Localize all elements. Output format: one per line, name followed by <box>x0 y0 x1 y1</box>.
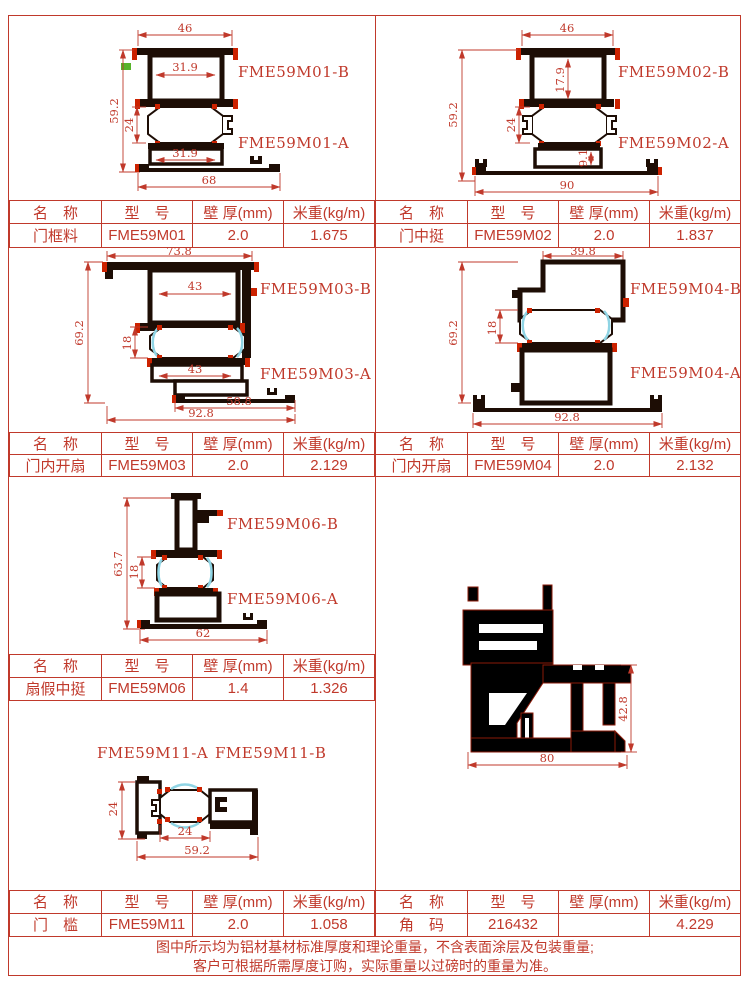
dimension-label: 69.2 <box>446 320 460 346</box>
cell-weight: 1.675 <box>283 224 374 247</box>
dimension-label: 62 <box>196 626 211 640</box>
col-header-model: 型 号 <box>101 433 192 455</box>
col-header-name: 名 称 <box>10 655 101 678</box>
col-header-thickness: 壁 厚(mm) <box>558 201 649 224</box>
cell-name: 门 槛 <box>10 914 101 937</box>
col-header-thickness: 壁 厚(mm) <box>192 433 283 455</box>
dimension-label: 18 <box>485 321 499 336</box>
green-swatch <box>121 63 131 70</box>
dimension-label: 58.8 <box>226 394 252 408</box>
profile-drawing-fme59m02: 46 17.9 24 59.2 9.1 90 FME59M02-B FME59M… <box>375 15 741 200</box>
spec-table-corner-cleat: 名 称 型 号 壁 厚(mm) 米重(kg/m) 角 码 216432 4.22… <box>375 890 741 937</box>
profile-label: FME59M06-A <box>227 590 338 608</box>
col-header-name: 名 称 <box>10 201 101 224</box>
cell-weight: 4.229 <box>649 914 740 937</box>
profile-drawing-fme59m11: FME59M11-A FME59M11-B 24 24 59.2 <box>9 701 375 890</box>
cell-thickness: 2.0 <box>192 455 283 477</box>
spec-table-fme59m06: 名 称 型 号 壁 厚(mm) 米重(kg/m) 扇假中挺 FME59M06 1… <box>9 654 375 701</box>
dimension-label: 63.7 <box>111 551 125 577</box>
col-header-thickness: 壁 厚(mm) <box>558 433 649 455</box>
col-header-thickness: 壁 厚(mm) <box>192 891 283 914</box>
dimension-label: 24 <box>504 118 518 133</box>
col-header-weight: 米重(kg/m) <box>283 433 374 455</box>
note-line-2: 客户可根据所需厚度订购，实际重量以过磅时的重量为准。 <box>193 957 557 976</box>
cell-model: FME59M01 <box>101 224 192 247</box>
dimension-label: 73.8 <box>166 248 192 258</box>
profile-drawing-fme59m01: 46 31.9 24 59.2 31.9 68 FME59M01-B FME59… <box>9 15 375 200</box>
footer-notes: 图中所示均为铝材基材标准厚度和理论重量，不含表面涂层及包装重量; 客户可根据所需… <box>9 937 741 976</box>
col-header-model: 型 号 <box>467 891 558 914</box>
cell-thickness <box>558 914 649 937</box>
col-header-thickness: 壁 厚(mm) <box>558 891 649 914</box>
cell-model: FME59M02 <box>467 224 558 247</box>
col-header-name: 名 称 <box>376 433 467 455</box>
col-header-weight: 米重(kg/m) <box>649 891 740 914</box>
spec-table-fme59m03: 名 称 型 号 壁 厚(mm) 米重(kg/m) 门内开扇 FME59M03 2… <box>9 432 375 477</box>
col-header-model: 型 号 <box>467 433 558 455</box>
profile-label: FME59M11-A <box>97 744 208 762</box>
dimension-label: 69.2 <box>72 320 86 346</box>
spec-sheet-page: 46 31.9 24 59.2 31.9 68 FME59M01-B FME59… <box>0 0 750 995</box>
profile-label: FME59M03-A <box>260 365 371 383</box>
cell-name: 门中挺 <box>376 224 467 247</box>
dimension-label: 31.9 <box>172 146 198 160</box>
dimension-label: 43 <box>188 279 203 293</box>
profile-label: FME59M02-B <box>618 63 729 81</box>
profile-label: FME59M04-A <box>630 364 741 382</box>
cell-thickness: 2.0 <box>192 224 283 247</box>
cell-weight: 1.058 <box>283 914 374 937</box>
profile-label: FME59M02-A <box>618 134 729 152</box>
profile-label: FME59M01-A <box>238 134 349 152</box>
cell-model: FME59M03 <box>101 455 192 477</box>
profile-label: FME59M01-B <box>238 63 349 81</box>
dimension-label: 42.8 <box>616 696 630 722</box>
dimension-label: 9.1 <box>576 149 590 167</box>
profile-drawing-fme59m06: 63.7 18 62 FME59M06-B FME59M06-A <box>9 477 375 654</box>
profile-label: FME59M04-B <box>630 280 741 298</box>
col-header-thickness: 壁 厚(mm) <box>192 655 283 678</box>
dimension-label: 92.8 <box>188 406 214 420</box>
dimension-label: 68 <box>202 173 217 187</box>
spec-table-fme59m02: 名 称 型 号 壁 厚(mm) 米重(kg/m) 门中挺 FME59M02 2.… <box>375 200 741 248</box>
dimension-label: 31.9 <box>172 60 198 74</box>
cell-model: FME59M11 <box>101 914 192 937</box>
spec-table-fme59m04: 名 称 型 号 壁 厚(mm) 米重(kg/m) 门内开扇 FME59M04 2… <box>375 432 741 477</box>
dimension-label: 46 <box>178 21 193 35</box>
cell-name: 门框料 <box>10 224 101 247</box>
dimension-label: 59.2 <box>184 843 210 857</box>
dimension-label: 43 <box>188 362 203 376</box>
dimension-label: 92.8 <box>554 410 580 424</box>
dimension-label: 17.9 <box>553 67 567 93</box>
dimension-label: 46 <box>560 21 575 35</box>
cell-name: 门内开扇 <box>376 455 467 477</box>
profile-label: FME59M06-B <box>227 515 338 533</box>
profile-label: FME59M11-B <box>215 744 326 762</box>
dimension-label: 24 <box>106 802 120 817</box>
col-header-name: 名 称 <box>376 201 467 224</box>
cell-thickness: 2.0 <box>192 914 283 937</box>
cell-weight: 1.326 <box>283 678 374 701</box>
dimension-label: 80 <box>540 751 555 765</box>
cell-model: FME59M04 <box>467 455 558 477</box>
cell-thickness: 2.0 <box>558 224 649 247</box>
dimension-label: 24 <box>122 118 136 133</box>
cell-weight: 2.129 <box>283 455 374 477</box>
col-header-name: 名 称 <box>10 891 101 914</box>
dimension-label: 59.2 <box>446 102 460 128</box>
dimension-label: 24 <box>178 824 193 838</box>
col-header-name: 名 称 <box>376 891 467 914</box>
cell-name: 门内开扇 <box>10 455 101 477</box>
dimension-label: 90 <box>560 178 575 192</box>
dimension-label: 59.2 <box>107 98 121 124</box>
dimension-label: 39.8 <box>570 248 596 258</box>
profile-drawing-fme59m03: 73.8 43 69.2 18 43 58.8 92.8 <box>9 248 375 432</box>
col-header-weight: 米重(kg/m) <box>283 891 374 914</box>
spec-table-fme59m01: 名 称 型 号 壁 厚(mm) 米重(kg/m) 门框料 FME59M01 2.… <box>9 200 375 248</box>
profile-drawing-fme59m04: 39.8 69.2 18 92.8 FME59M04-B FME59M04-A <box>375 248 741 432</box>
dimension-label: 18 <box>120 336 134 351</box>
cell-thickness: 1.4 <box>192 678 283 701</box>
cell-weight: 1.837 <box>649 224 740 247</box>
cell-name: 扇假中挺 <box>10 678 101 701</box>
note-line-1: 图中所示均为铝材基材标准厚度和理论重量，不含表面涂层及包装重量; <box>156 938 594 957</box>
col-header-name: 名 称 <box>10 433 101 455</box>
profile-label: FME59M03-B <box>260 280 371 298</box>
spec-table-fme59m11: 名 称 型 号 壁 厚(mm) 米重(kg/m) 门 槛 FME59M11 2.… <box>9 890 375 937</box>
cell-name: 角 码 <box>376 914 467 937</box>
col-header-model: 型 号 <box>101 891 192 914</box>
cell-thickness: 2.0 <box>558 455 649 477</box>
cell-weight: 2.132 <box>649 455 740 477</box>
col-header-weight: 米重(kg/m) <box>649 433 740 455</box>
profile-drawing-corner-cleat: 42.8 80 <box>375 477 741 890</box>
col-header-weight: 米重(kg/m) <box>649 201 740 224</box>
col-header-model: 型 号 <box>101 655 192 678</box>
col-header-weight: 米重(kg/m) <box>283 201 374 224</box>
dimension-label: 18 <box>127 565 141 580</box>
cell-model: 216432 <box>467 914 558 937</box>
col-header-model: 型 号 <box>101 201 192 224</box>
col-header-model: 型 号 <box>467 201 558 224</box>
cell-model: FME59M06 <box>101 678 192 701</box>
col-header-thickness: 壁 厚(mm) <box>192 201 283 224</box>
col-header-weight: 米重(kg/m) <box>283 655 374 678</box>
